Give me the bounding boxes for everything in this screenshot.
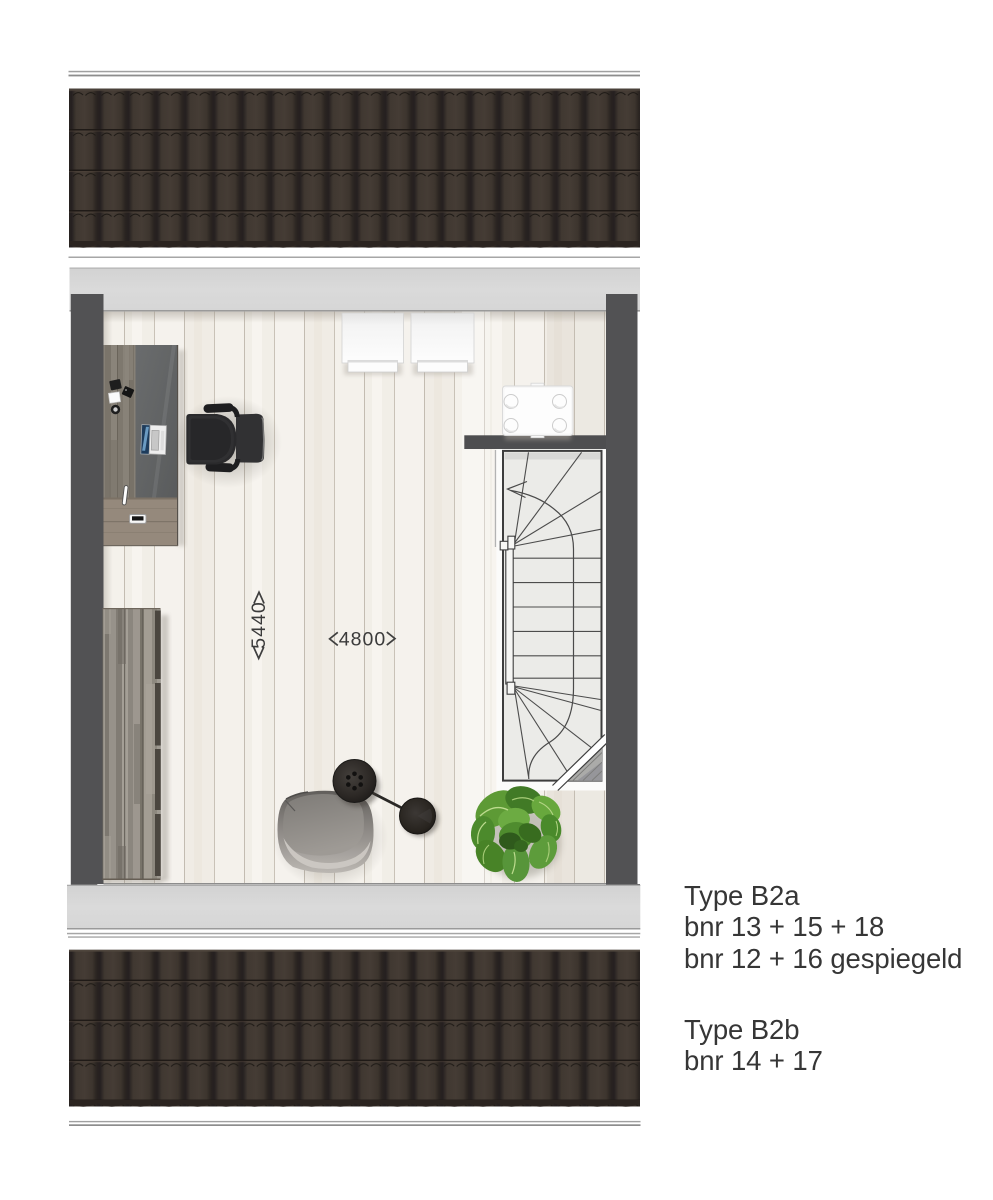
svg-text:5440: 5440 [248, 601, 270, 648]
svg-text:4800: 4800 [339, 628, 386, 650]
